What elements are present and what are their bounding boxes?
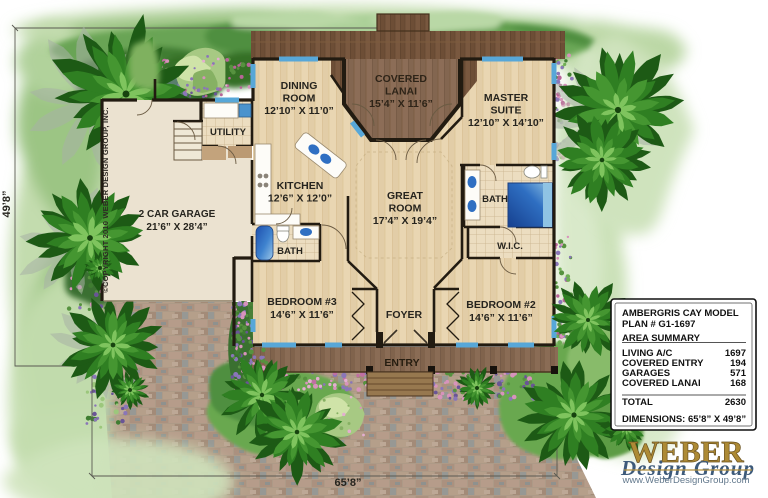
svg-text:www.WeberDesignGroup.com: www.WeberDesignGroup.com (621, 475, 749, 486)
svg-text:14’6” X 11’6”: 14’6” X 11’6” (270, 309, 334, 321)
svg-text:2630: 2630 (725, 397, 746, 408)
svg-text:BEDROOM #3: BEDROOM #3 (267, 296, 337, 308)
svg-text:15’4” X 11’6”: 15’4” X 11’6” (369, 98, 433, 110)
svg-text:21’6” X 28’4”: 21’6” X 28’4” (146, 222, 207, 233)
svg-text:BATH: BATH (277, 246, 303, 257)
svg-text:GREAT: GREAT (387, 190, 424, 202)
svg-text:BEDROOM #2: BEDROOM #2 (466, 299, 536, 311)
svg-text:DINING: DINING (281, 80, 318, 92)
svg-text:12’10” X 11’0”: 12’10” X 11’0” (264, 105, 333, 117)
svg-text:168: 168 (730, 378, 746, 389)
svg-text:ROOM: ROOM (389, 203, 422, 215)
svg-text:ENTRY: ENTRY (384, 357, 419, 369)
svg-text:14’6” X 11’6”: 14’6” X 11’6” (469, 312, 533, 324)
svg-text:©COPYRIGHT 2010 WEBER DESIGN G: ©COPYRIGHT 2010 WEBER DESIGN GROUP, INC. (101, 107, 110, 293)
svg-text:KITCHEN: KITCHEN (277, 180, 324, 192)
svg-text:FOYER: FOYER (386, 309, 423, 321)
svg-text:COVERED: COVERED (375, 73, 427, 85)
svg-text:W.I.C.: W.I.C. (497, 241, 523, 252)
svg-text:TOTAL: TOTAL (622, 397, 653, 408)
svg-text:UTILITY: UTILITY (210, 127, 247, 138)
svg-text:49’8”: 49’8” (1, 191, 13, 218)
svg-text:12’10” X 14’10”: 12’10” X 14’10” (468, 117, 544, 129)
svg-text:SUITE: SUITE (491, 105, 522, 117)
svg-text:DIMENSIONS: 65’8” X 49’8”: DIMENSIONS: 65’8” X 49’8” (622, 414, 746, 425)
svg-text:17’4” X 19’4”: 17’4” X 19’4” (373, 215, 437, 227)
svg-text:ROOM: ROOM (283, 93, 316, 105)
svg-text:MASTER: MASTER (484, 92, 529, 104)
svg-text:PLAN # G1-1697: PLAN # G1-1697 (622, 319, 695, 330)
svg-text:BATH: BATH (482, 194, 508, 205)
svg-text:COVERED LANAI: COVERED LANAI (622, 378, 701, 389)
svg-text:12’6” X 12’0”: 12’6” X 12’0” (268, 193, 332, 205)
svg-text:65’8”: 65’8” (335, 477, 362, 489)
svg-text:LANAI: LANAI (385, 86, 417, 98)
svg-text:2 CAR GARAGE: 2 CAR GARAGE (139, 209, 216, 220)
svg-text:AMBERGRIS CAY MODEL: AMBERGRIS CAY MODEL (622, 308, 739, 319)
